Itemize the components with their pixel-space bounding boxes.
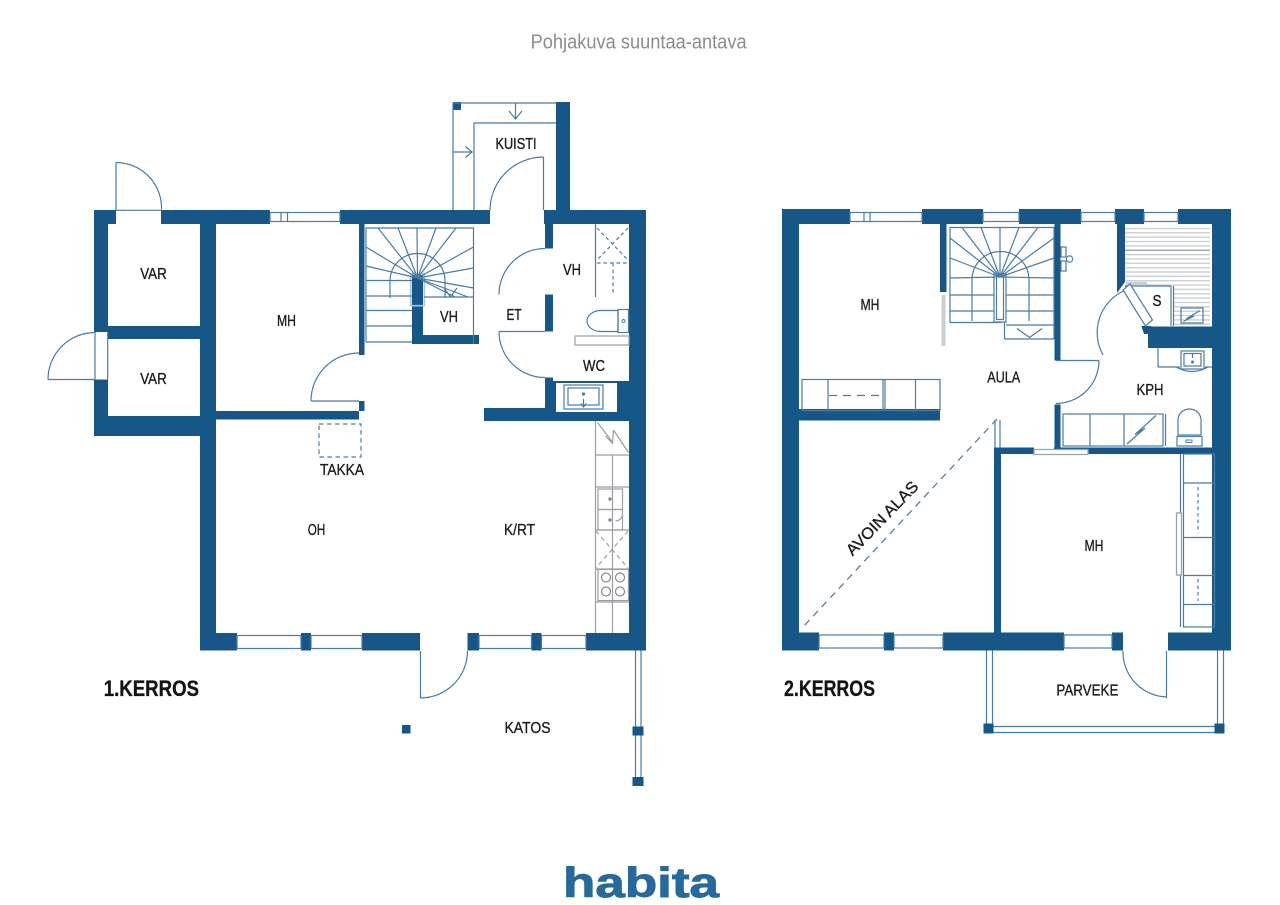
svg-text:KATOS: KATOS [505,720,551,737]
svg-text:1.KERROS: 1.KERROS [104,676,199,701]
svg-text:ET: ET [507,307,522,324]
svg-text:KPH: KPH [1137,382,1164,399]
svg-text:2.KERROS: 2.KERROS [784,676,875,701]
svg-text:AULA: AULA [987,370,1020,387]
svg-text:VH: VH [563,262,581,279]
svg-text:Pohjakuva suuntaa-antava: Pohjakuva suuntaa-antava [531,32,748,54]
svg-text:TAKKA: TAKKA [320,462,364,479]
svg-text:PARVEKE: PARVEKE [1056,683,1118,700]
svg-text:WC: WC [583,358,605,375]
svg-text:MH: MH [1085,538,1104,555]
svg-text:KUISTI: KUISTI [496,136,537,153]
svg-text:MH: MH [277,313,296,330]
svg-text:OH: OH [308,522,326,539]
svg-text:habita: habita [563,859,720,905]
svg-text:K/RT: K/RT [504,522,535,539]
svg-text:VH: VH [440,309,458,326]
svg-text:MH: MH [861,297,880,314]
svg-text:VAR: VAR [140,266,167,283]
svg-text:VAR: VAR [140,371,167,388]
svg-text:S: S [1153,293,1162,310]
